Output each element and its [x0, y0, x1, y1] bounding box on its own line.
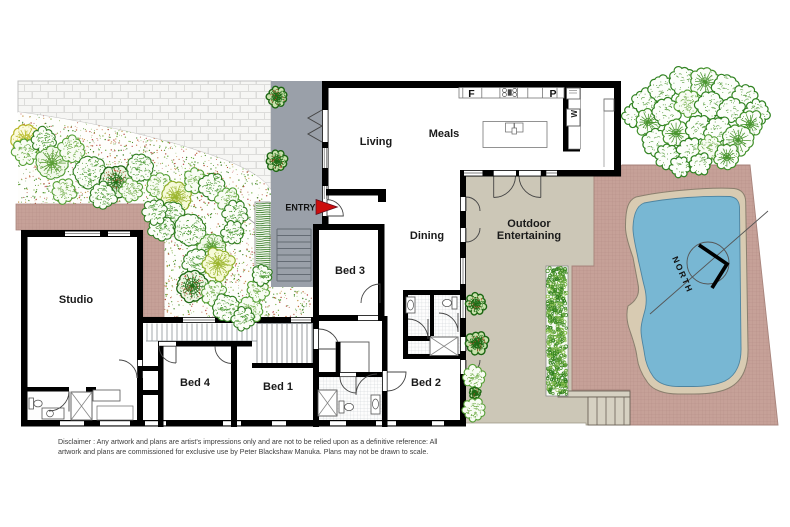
svg-text:Bed 2: Bed 2	[411, 377, 441, 389]
svg-text:Studio: Studio	[59, 294, 93, 306]
svg-text:Entertaining: Entertaining	[497, 230, 561, 242]
svg-text:Bed 1: Bed 1	[263, 381, 293, 393]
svg-text:Bed 3: Bed 3	[335, 265, 365, 277]
svg-text:Meals: Meals	[429, 128, 460, 140]
svg-text:F: F	[468, 88, 475, 100]
svg-text:ENTRY: ENTRY	[285, 203, 315, 213]
svg-text:artwork and plans are commissi: artwork and plans are commissioned for e…	[58, 448, 428, 456]
svg-text:W: W	[570, 110, 579, 118]
svg-text:P: P	[549, 88, 556, 100]
svg-text:Bed 4: Bed 4	[180, 377, 211, 389]
svg-text:Disclaimer : Any artwork and p: Disclaimer : Any artwork and plans are a…	[58, 438, 438, 446]
svg-text:Outdoor: Outdoor	[507, 218, 551, 230]
svg-text:Dining: Dining	[410, 230, 444, 242]
svg-text:Living: Living	[360, 136, 392, 148]
